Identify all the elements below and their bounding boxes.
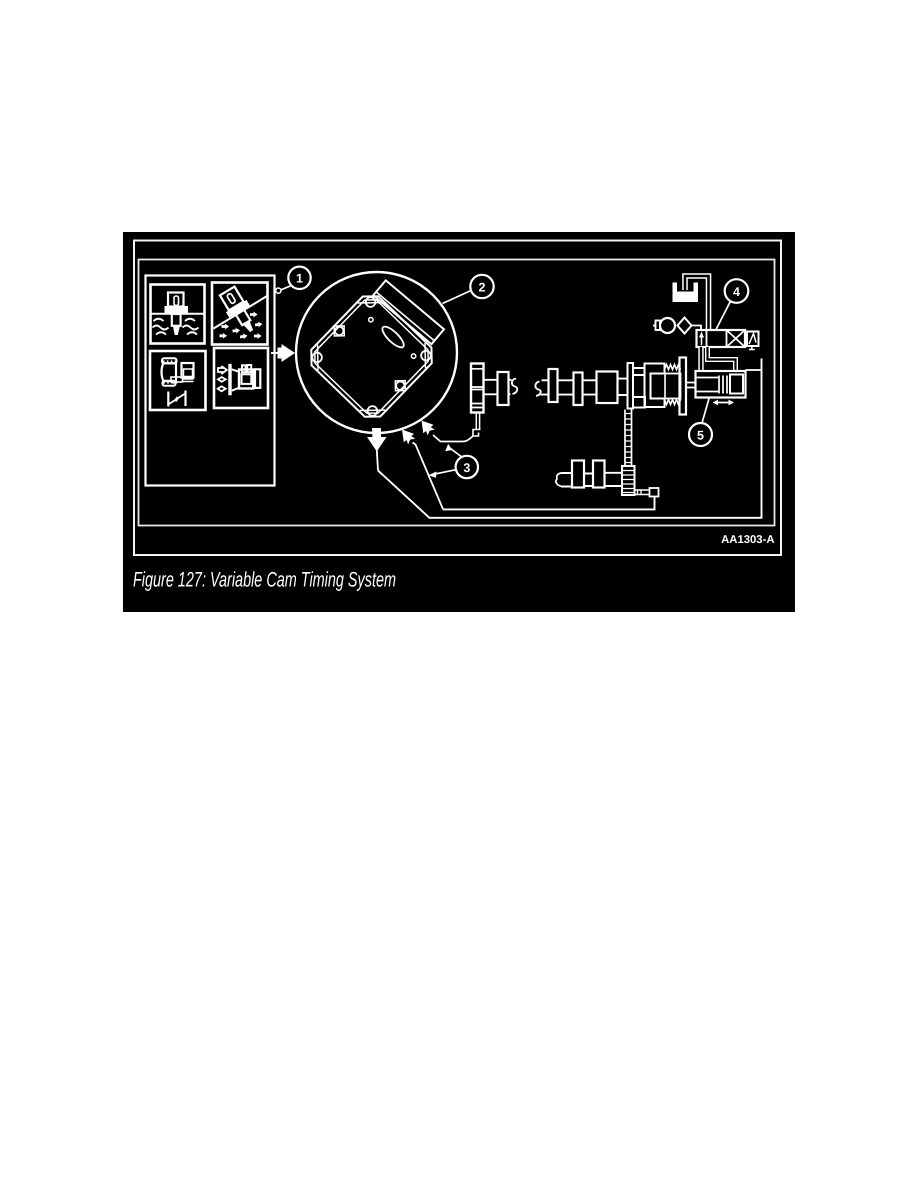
svg-text:2: 2 [479, 280, 486, 294]
svg-text:1: 1 [296, 272, 303, 286]
svg-text:3: 3 [463, 461, 470, 475]
svg-text:AA1303-A: AA1303-A [721, 534, 774, 546]
svg-text:Figure 127: Variable Cam Timin: Figure 127: Variable Cam Timing System [133, 569, 396, 592]
svg-text:5: 5 [697, 428, 704, 442]
svg-text:4: 4 [733, 285, 740, 299]
